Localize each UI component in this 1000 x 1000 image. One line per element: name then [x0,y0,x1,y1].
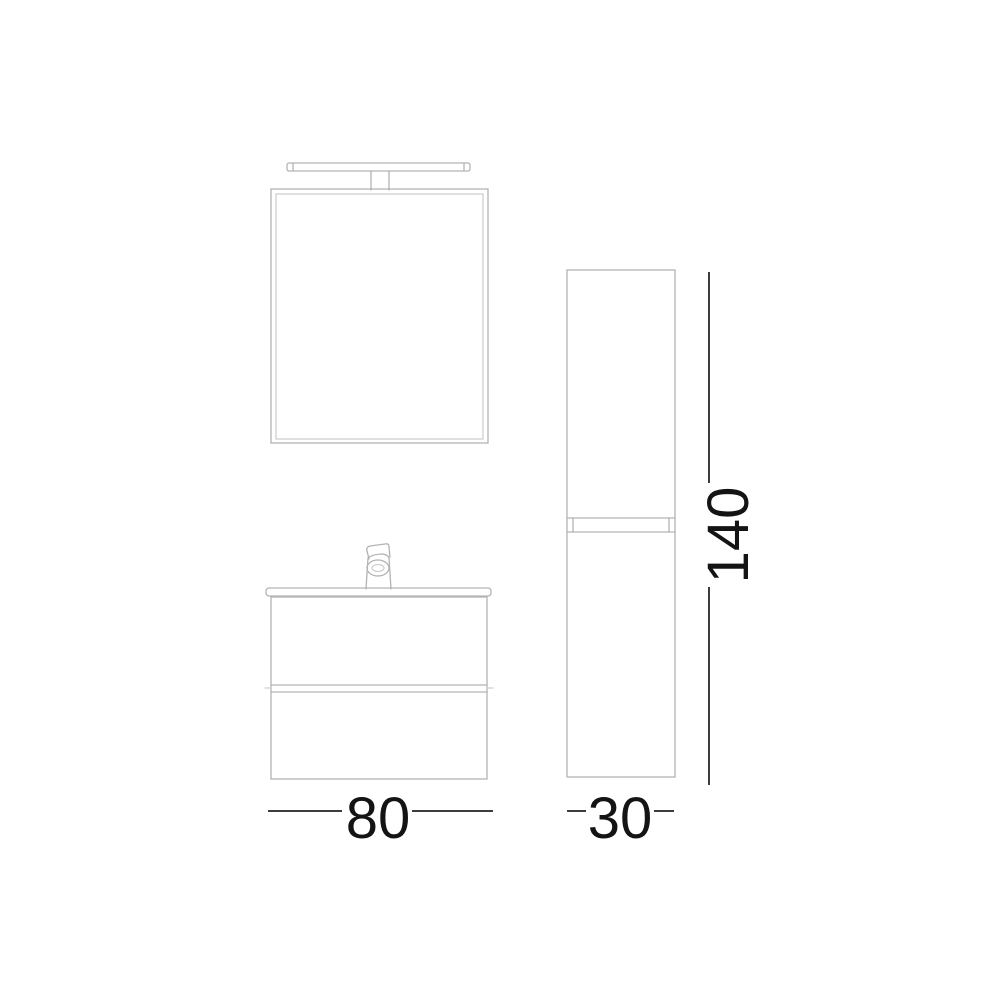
dimension-labels-group: 80 30 140 [346,487,761,851]
vanity-cabinet-body [271,597,487,779]
furniture-group [265,163,675,779]
column-cabinet-body [567,270,675,777]
mirror-frame-inner [276,194,483,439]
mirror-frame-outer [271,189,488,443]
faucet [366,544,391,589]
technical-drawing-canvas: 80 30 140 [0,0,1000,1000]
dim-label-column-height: 140 [696,487,761,584]
faucet-collar-inner [372,565,384,572]
bathroom-furniture-drawing: 80 30 140 [0,0,1000,1000]
dim-label-vanity-width: 80 [346,786,411,851]
light-fixture-bar [287,163,470,171]
dim-label-column-width: 30 [588,786,653,851]
washbasin-top [266,588,491,596]
faucet-collar [367,560,389,576]
